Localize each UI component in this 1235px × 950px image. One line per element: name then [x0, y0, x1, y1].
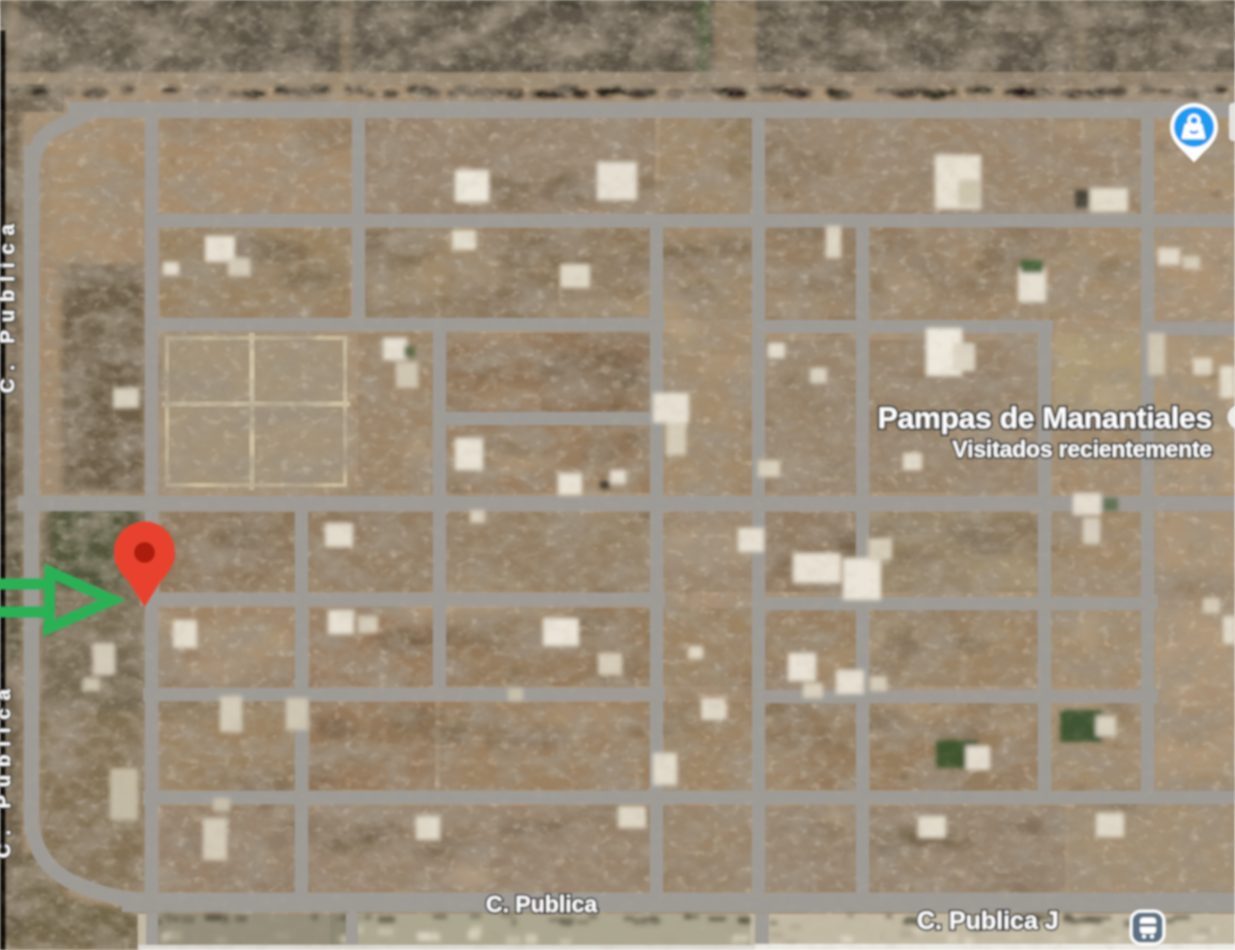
svg-text:C. Publica J: C. Publica J — [917, 907, 1059, 935]
svg-text:C. Publica: C. Publica — [486, 891, 597, 917]
svg-text:Visitados recientemente: Visitados recientemente — [952, 436, 1212, 462]
svg-text:Pampas de Manantiales: Pampas de Manantiales — [878, 402, 1212, 435]
svg-text:C. Publica: C. Publica — [0, 216, 19, 393]
svg-text:C. Publica: C. Publica — [0, 681, 15, 858]
